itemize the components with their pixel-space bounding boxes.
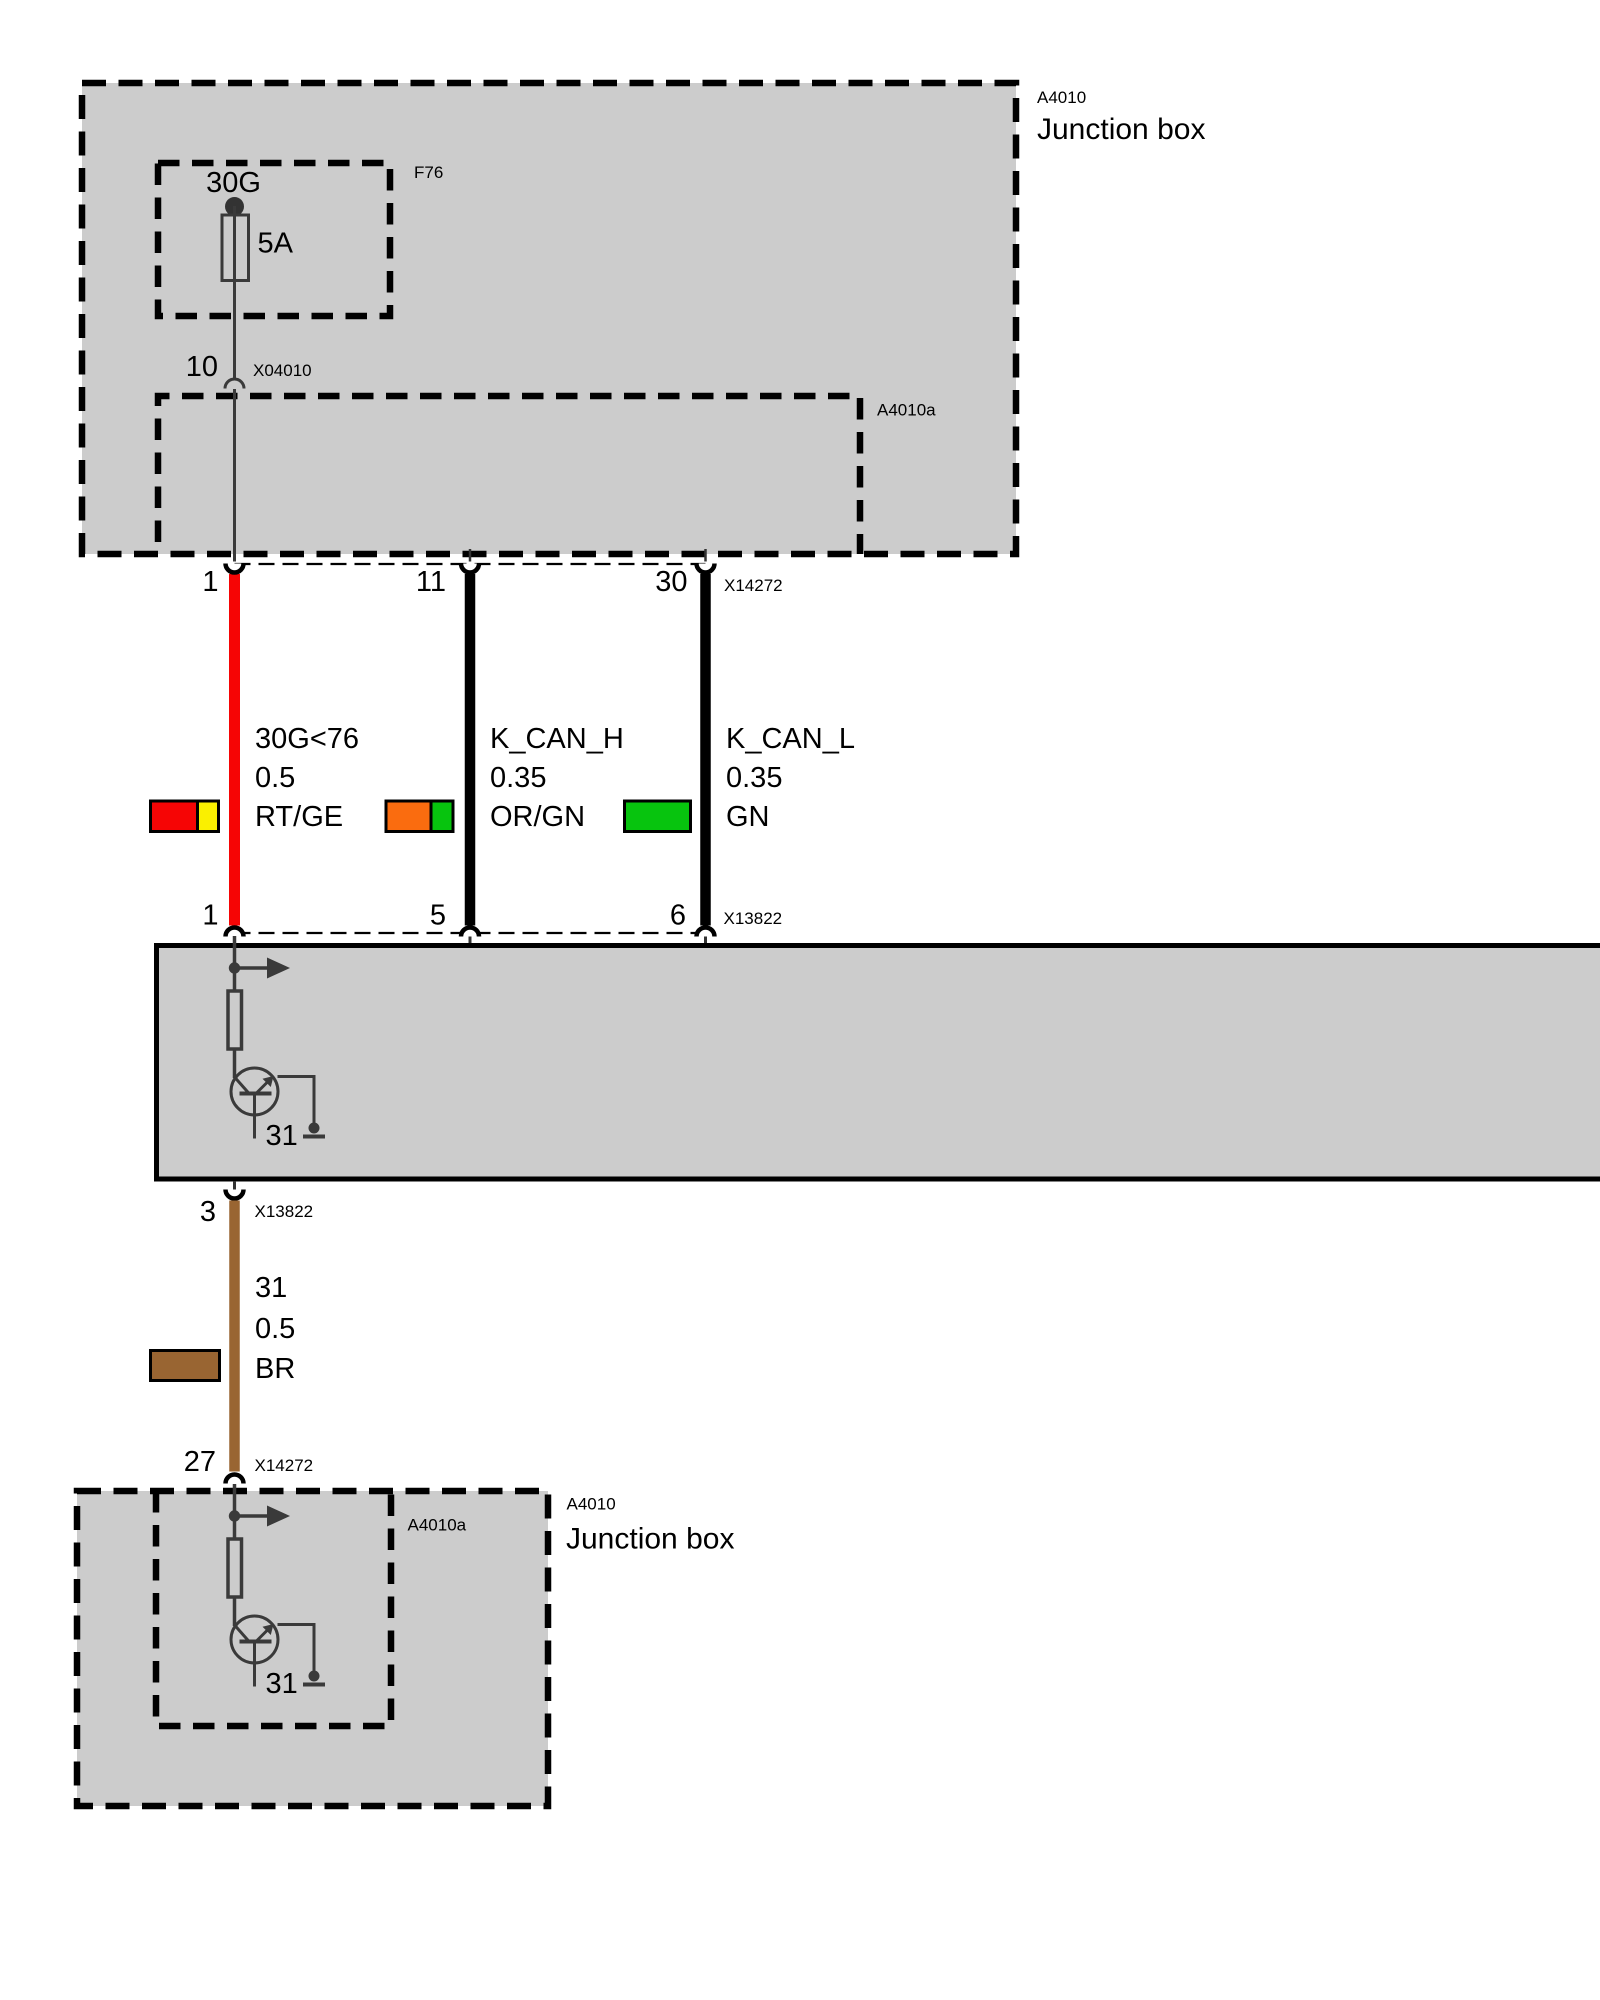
svg-text:31: 31 — [255, 1272, 287, 1304]
svg-text:X13822: X13822 — [724, 909, 783, 928]
svg-text:A4010a: A4010a — [877, 401, 936, 420]
svg-text:GN: GN — [726, 801, 770, 833]
svg-text:Junction box: Junction box — [1037, 113, 1205, 146]
svg-text:6: 6 — [670, 900, 686, 932]
svg-text:0.5: 0.5 — [255, 762, 295, 794]
svg-text:RT/GE: RT/GE — [255, 801, 343, 833]
svg-text:27: 27 — [184, 1446, 216, 1478]
svg-text:1: 1 — [202, 900, 218, 932]
svg-text:Junction box: Junction box — [566, 1523, 734, 1556]
svg-text:1: 1 — [202, 566, 218, 598]
svg-text:30: 30 — [655, 566, 687, 598]
svg-text:0.5: 0.5 — [255, 1313, 295, 1345]
svg-text:X14272: X14272 — [255, 1456, 314, 1475]
svg-text:K_CAN_L: K_CAN_L — [726, 723, 855, 755]
svg-text:3: 3 — [200, 1196, 216, 1228]
svg-text:5: 5 — [430, 900, 446, 932]
svg-text:X14272: X14272 — [724, 576, 783, 595]
svg-text:A4010: A4010 — [567, 1495, 616, 1514]
svg-text:0.35: 0.35 — [726, 762, 782, 794]
svg-text:30G: 30G — [206, 167, 261, 199]
svg-text:F76: F76 — [414, 163, 443, 182]
svg-text:11: 11 — [416, 566, 446, 598]
svg-text:30G<76: 30G<76 — [255, 723, 359, 755]
svg-text:X13822: X13822 — [255, 1202, 314, 1221]
svg-text:K_CAN_H: K_CAN_H — [490, 723, 624, 755]
svg-text:A4010: A4010 — [1037, 88, 1086, 107]
svg-text:5A: 5A — [258, 228, 294, 260]
svg-text:BR: BR — [255, 1353, 295, 1385]
svg-text:OR/GN: OR/GN — [490, 801, 585, 833]
svg-text:A4010a: A4010a — [408, 1516, 467, 1535]
svg-text:10: 10 — [186, 351, 218, 383]
svg-text:0.35: 0.35 — [490, 762, 546, 794]
svg-text:X04010: X04010 — [253, 361, 312, 380]
